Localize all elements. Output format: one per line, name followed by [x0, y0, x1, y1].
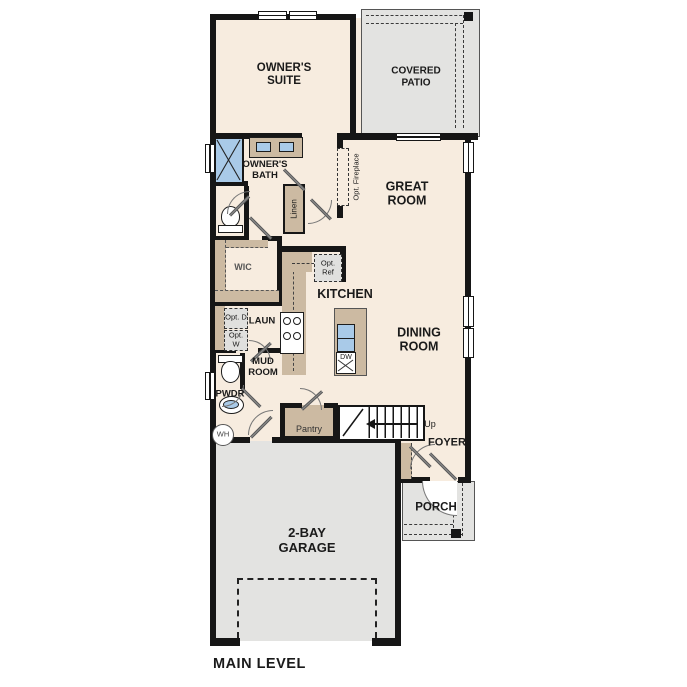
- water-heater-label: WH: [217, 431, 230, 440]
- pantry-wall-bottom: [280, 436, 338, 441]
- island-sink-divider: [338, 338, 354, 339]
- patio-dash-right-outer: [463, 15, 464, 128]
- label-owners-suite: OWNER'S SUITE: [241, 62, 327, 88]
- wall-great-top-left: [337, 133, 396, 140]
- label-porch: PORCH: [415, 501, 457, 514]
- stove-burner: [293, 317, 301, 325]
- label-powder: PWDR: [215, 390, 244, 401]
- window-dining-2: [463, 328, 474, 358]
- wall-garage-bottom-left: [210, 638, 240, 646]
- opt-ref-label: Opt. Ref: [315, 259, 341, 276]
- label-great-room: GREAT ROOM: [377, 180, 437, 209]
- label-foyer: FOYER: [428, 437, 466, 450]
- stove-burner: [283, 317, 291, 325]
- window-powder: [205, 372, 215, 400]
- opt-dryer-label: Opt. D: [225, 314, 247, 323]
- island-sink: [337, 324, 355, 352]
- bath-toilet-tank: [218, 225, 243, 233]
- stove-burner: [293, 332, 301, 340]
- vanity-sink-right: [279, 142, 294, 152]
- kitchen-counter-corner: [282, 252, 312, 272]
- porch-dash-bottom-inner: [404, 524, 453, 525]
- window-dining-1: [463, 296, 474, 327]
- patio-dash-top-inner: [366, 23, 463, 24]
- stove-burner: [283, 332, 291, 340]
- staircase: [338, 405, 425, 441]
- floor-plan: Up Linen Opt. D Opt. W WH Opt. Ref: [0, 0, 687, 687]
- opt-fireplace-label: Opt. Fireplace: [353, 153, 362, 200]
- label-kitchen: KITCHEN: [317, 287, 373, 301]
- wall-great-top-right: [441, 133, 478, 140]
- vanity-sink-left: [256, 142, 271, 152]
- wic-shelf-bottom: [215, 290, 279, 302]
- stair-break-line: [340, 407, 366, 438]
- stairs-up-label: Up: [424, 419, 436, 429]
- opt-washer-label: Opt. W: [225, 331, 247, 348]
- wic-shelf-top: [226, 240, 268, 248]
- window-bath: [205, 144, 215, 173]
- dishwasher-label: DW: [340, 354, 352, 362]
- opt-fireplace-box: [337, 148, 349, 206]
- wall-foyer-bottom-right: [458, 477, 471, 483]
- porch-post: [451, 529, 461, 538]
- label-laundry: LAUN: [249, 317, 275, 328]
- window-suite-2: [289, 11, 317, 20]
- pantry-wall-left: [280, 403, 285, 441]
- label-owners-bath: OWNER'S BATH: [234, 160, 296, 182]
- stair-arrow-line: [374, 423, 418, 425]
- stair-arrow-head: [366, 419, 375, 429]
- patio-dash-right-inner: [455, 23, 456, 128]
- window-great-room: [463, 142, 474, 173]
- wall-suite-right: [350, 14, 356, 140]
- patio-post: [464, 12, 473, 21]
- linen-label: Linen: [289, 199, 298, 219]
- label-covered-patio: COVERED PATIO: [381, 66, 451, 89]
- label-pantry: Pantry: [296, 424, 322, 434]
- garage-door: [237, 578, 377, 638]
- label-wic: WIC: [234, 262, 252, 272]
- label-dining-room: DINING ROOM: [389, 326, 449, 355]
- window-suite-1: [258, 11, 287, 20]
- bath-vanity: [249, 137, 303, 158]
- wall-garage-bottom-right: [372, 638, 401, 646]
- stove: [280, 312, 304, 354]
- powder-toilet-bowl: [221, 361, 240, 383]
- label-mud-room: MUD ROOM: [241, 357, 285, 379]
- patio-dash-top-outer: [366, 15, 472, 16]
- plan-title: MAIN LEVEL: [213, 656, 306, 672]
- porch-dash-right-outer: [462, 483, 463, 536]
- window-patio-slider: [396, 133, 441, 141]
- label-garage: 2-BAY GARAGE: [269, 526, 345, 556]
